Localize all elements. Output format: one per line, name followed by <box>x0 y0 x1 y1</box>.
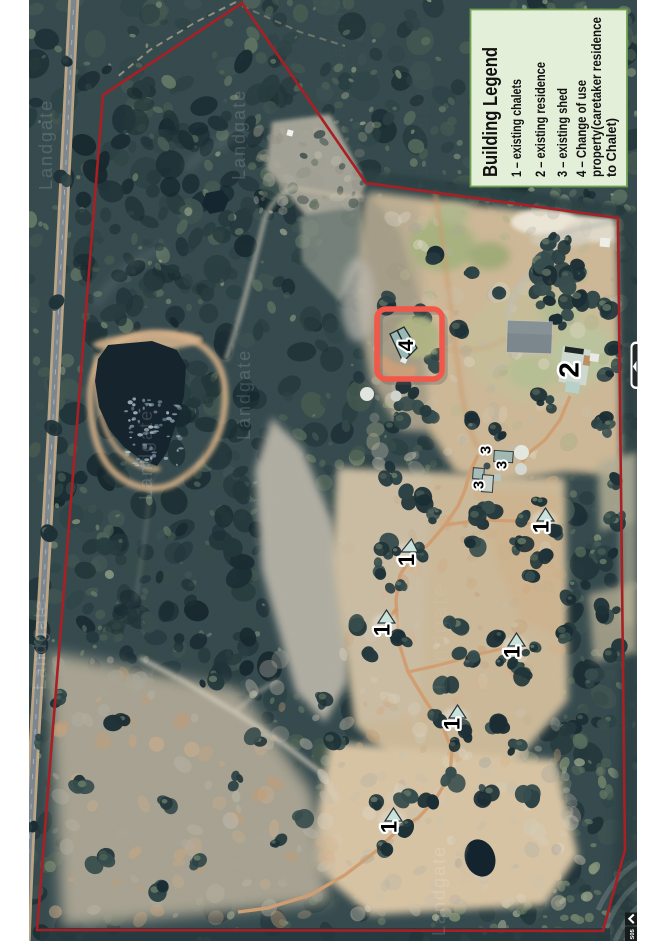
svg-text:3: 3 <box>494 461 511 469</box>
svg-text:Building Legend: Building Legend <box>480 47 502 177</box>
svg-text:Landgate: Landgate <box>429 845 449 936</box>
svg-text:1: 1 <box>370 624 395 636</box>
svg-text:Landga: Landga <box>329 0 349 70</box>
svg-text:1: 1 <box>394 554 419 566</box>
svg-text:Landgate: Landgate <box>36 99 56 190</box>
svg-text:Landgate: Landgate <box>234 349 254 440</box>
svg-text:Landgate: Landgate <box>30 599 50 690</box>
svg-text:Landgate: Landgate <box>136 409 156 500</box>
svg-text:1: 1 <box>377 821 402 833</box>
svg-text:1 – existing chalets: 1 – existing chalets <box>509 79 524 177</box>
svg-text:1: 1 <box>529 521 554 533</box>
svg-text:2: 2 <box>554 362 585 378</box>
svg-text:2 – existing residence: 2 – existing residence <box>533 62 548 177</box>
svg-text:Landgate: Landgate <box>229 89 249 180</box>
svg-text:3 – existing shed: 3 – existing shed <box>555 88 570 177</box>
svg-text:property(caretaker residence: property(caretaker residence <box>589 17 604 177</box>
svg-text:Landgate: Landgate <box>412 84 432 175</box>
svg-text:Landgate: Landgate <box>427 582 452 690</box>
svg-text:1: 1 <box>440 718 465 730</box>
svg-text:3: 3 <box>478 446 495 454</box>
svg-text:4 – Change of use: 4 – Change of use <box>574 80 589 177</box>
svg-text:1: 1 <box>500 646 525 658</box>
svg-text:4: 4 <box>395 339 418 351</box>
svg-text:to Chalet): to Chalet) <box>604 118 619 177</box>
svg-text:3: 3 <box>471 481 488 489</box>
svg-text:S05: S05 <box>630 928 636 939</box>
